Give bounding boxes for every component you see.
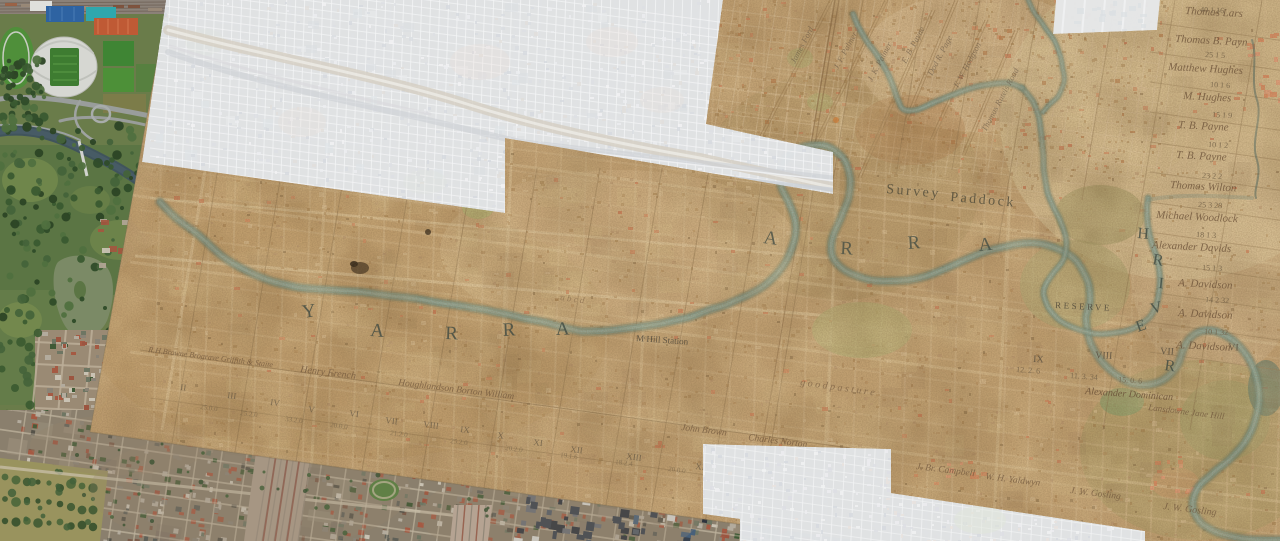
svg-text:XI: XI bbox=[533, 437, 544, 448]
svg-text:VIII: VIII bbox=[1095, 350, 1113, 362]
svg-text:15 1 9: 15 1 9 bbox=[1212, 110, 1232, 120]
svg-text:18 1 3: 18 1 3 bbox=[1196, 230, 1216, 240]
svg-text:VI: VI bbox=[1228, 342, 1239, 354]
svg-text:15 1 3: 15 1 3 bbox=[1202, 263, 1222, 273]
svg-text:IV: IV bbox=[270, 397, 281, 408]
svg-text:R: R bbox=[502, 319, 516, 341]
svg-text:VIII: VIII bbox=[423, 419, 440, 431]
svg-text:40 1 16: 40 1 16 bbox=[1200, 5, 1224, 15]
svg-text:23 2 2: 23 2 2 bbox=[1202, 171, 1222, 181]
svg-text:R: R bbox=[445, 323, 459, 344]
svg-text:R: R bbox=[907, 232, 921, 254]
svg-text:III: III bbox=[227, 390, 237, 401]
svg-text:VI: VI bbox=[349, 408, 360, 419]
svg-text:II: II bbox=[180, 382, 187, 393]
svg-text:H: H bbox=[1137, 225, 1150, 243]
svg-text:A: A bbox=[555, 319, 570, 340]
svg-text:VII: VII bbox=[385, 415, 399, 426]
svg-text:A: A bbox=[370, 320, 385, 342]
svg-text:IX: IX bbox=[460, 424, 471, 435]
svg-text:IX: IX bbox=[1033, 354, 1045, 366]
svg-text:10 1 6: 10 1 6 bbox=[1210, 80, 1230, 90]
svg-text:15. 0. 6: 15. 0. 6 bbox=[1118, 375, 1143, 386]
svg-text:10 1 32: 10 1 32 bbox=[1204, 327, 1228, 337]
svg-text:12. 2. 6: 12. 2. 6 bbox=[1016, 365, 1041, 376]
svg-text:14 2 32: 14 2 32 bbox=[1205, 295, 1229, 305]
svg-text:VII: VII bbox=[1160, 346, 1174, 358]
svg-text:25 1 5: 25 1 5 bbox=[1205, 50, 1225, 60]
svg-text:25 3 28: 25 3 28 bbox=[1198, 200, 1222, 210]
svg-text:10 1 2: 10 1 2 bbox=[1208, 140, 1228, 150]
svg-text:A: A bbox=[978, 234, 994, 256]
svg-text:11. 3. 34: 11. 3. 34 bbox=[1070, 371, 1098, 382]
svg-text:R: R bbox=[840, 238, 854, 260]
